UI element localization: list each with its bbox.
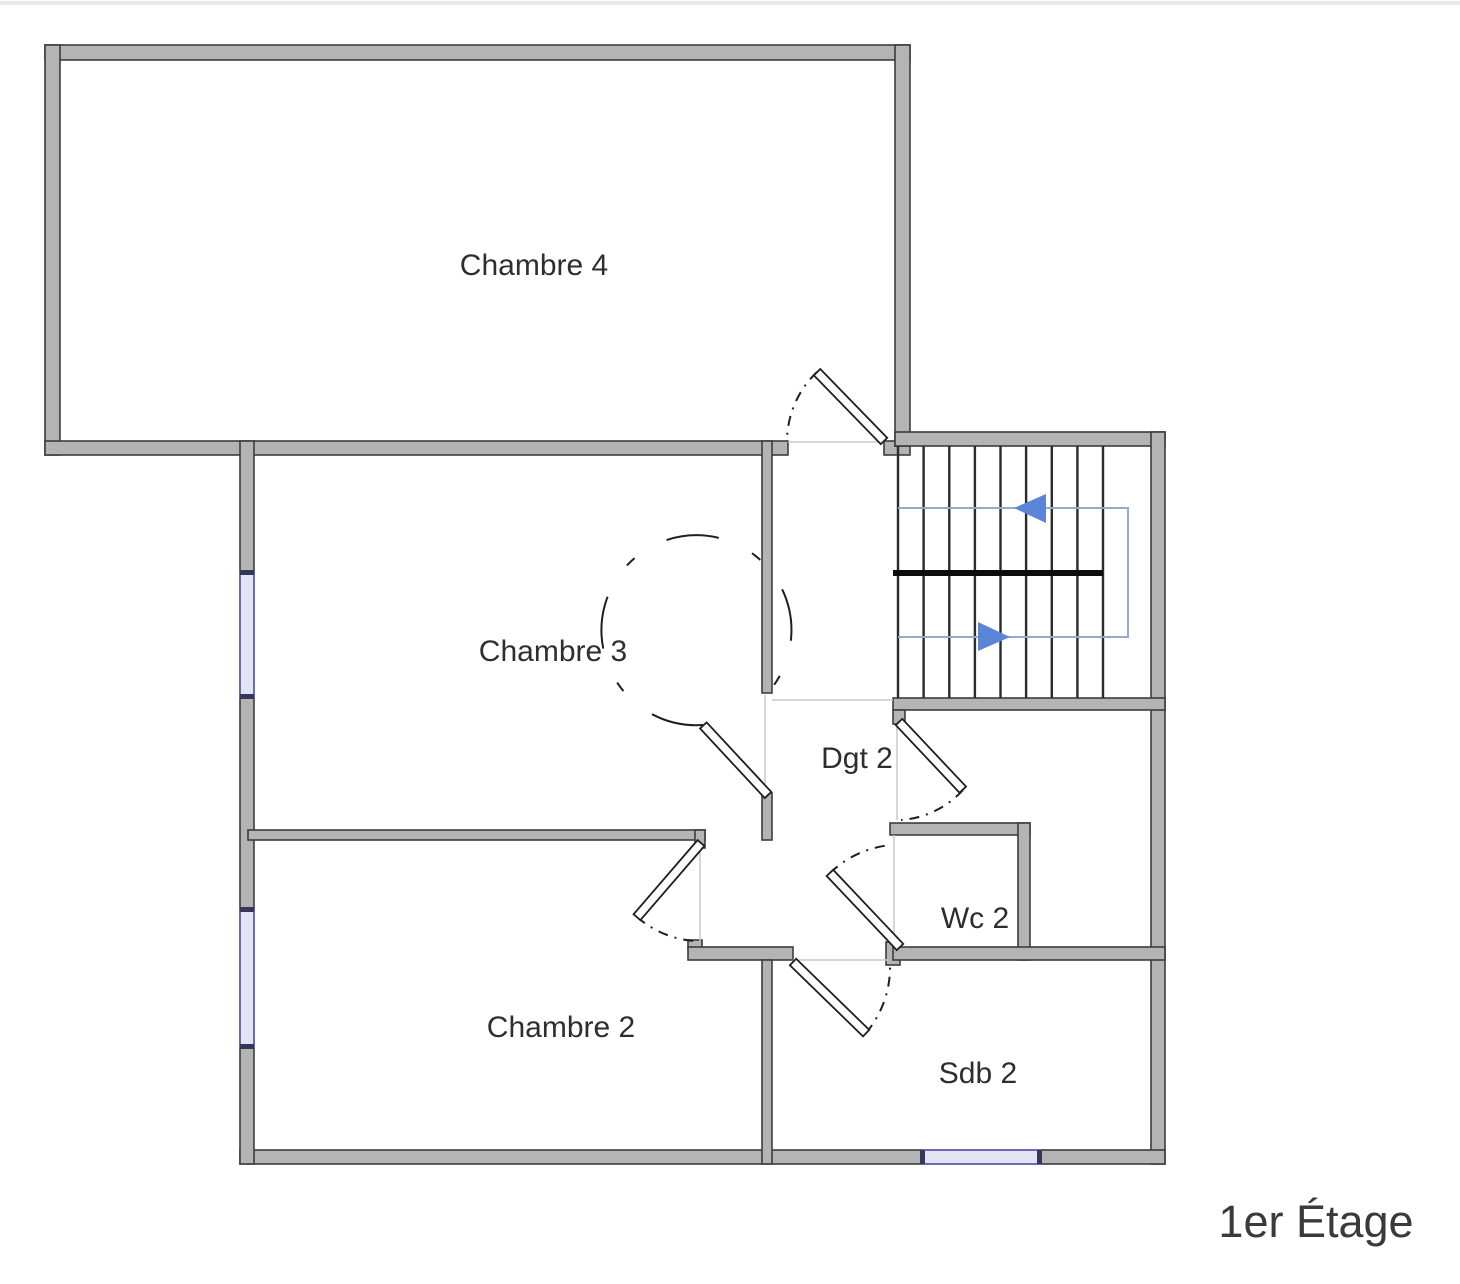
windows <box>240 570 1042 1164</box>
window-sdb-2 <box>920 1150 1042 1164</box>
room-label-dgt-2: Dgt 2 <box>821 742 893 775</box>
room-label-sdb-2: Sdb 2 <box>939 1057 1017 1090</box>
floor-plan-canvas: Chambre 4 Chambre 3 Chambre 2 Dgt 2 Wc 2… <box>0 0 1460 1284</box>
image-top-edge <box>0 1 1460 5</box>
threshold-lines <box>700 442 897 960</box>
door-chambre-4 <box>787 369 887 444</box>
floor-plan-page: Chambre 4 Chambre 3 Chambre 2 Dgt 2 Wc 2… <box>0 0 1460 1284</box>
stair-arrow-down-icon <box>978 622 1010 651</box>
staircase <box>893 446 1128 698</box>
room-labels: Chambre 4 Chambre 3 Chambre 2 Dgt 2 Wc 2… <box>460 249 1017 1090</box>
door-wc-2 <box>827 845 904 950</box>
room-label-chambre-2: Chambre 2 <box>487 1011 635 1044</box>
window-chambre-3 <box>240 570 254 699</box>
stair-arrow-up-icon <box>1014 494 1046 523</box>
window-chambre-2 <box>240 907 254 1049</box>
door-degagement <box>896 719 966 820</box>
room-label-wc-2: Wc 2 <box>941 902 1009 935</box>
floor-title: 1er Étage <box>1218 1196 1413 1247</box>
room-label-chambre-4: Chambre 4 <box>460 249 608 282</box>
door-chambre-2 <box>634 840 705 941</box>
room-label-chambre-3: Chambre 3 <box>479 635 627 668</box>
door-sdb-2 <box>790 959 890 1037</box>
